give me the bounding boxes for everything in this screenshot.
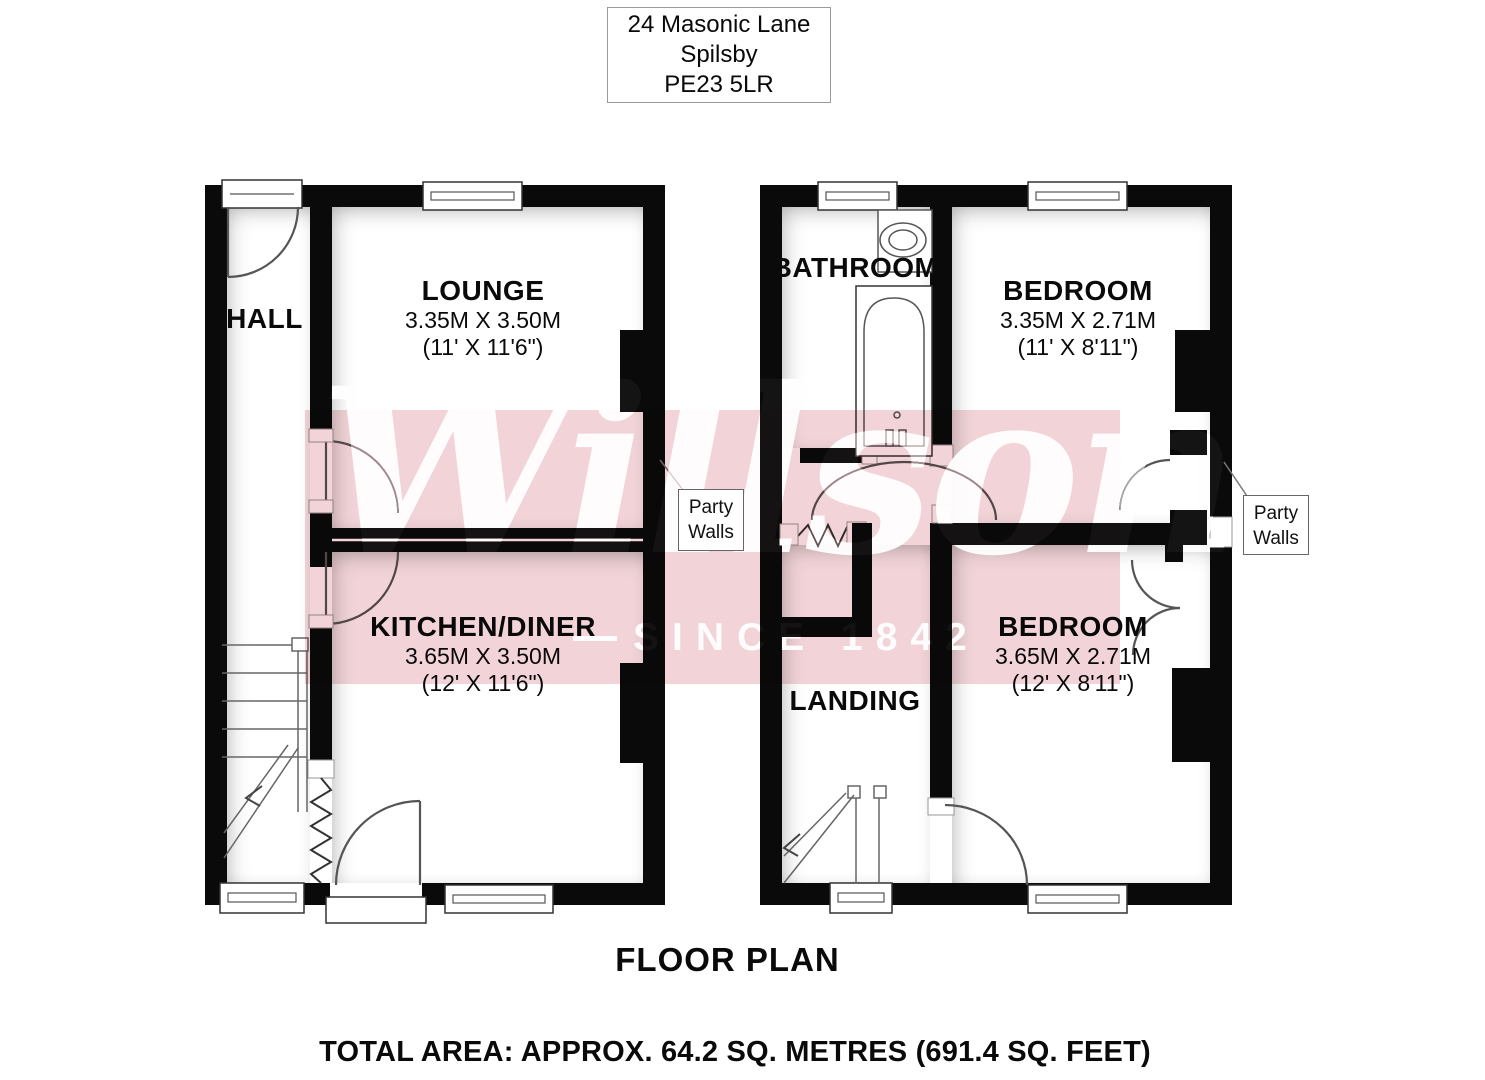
staircase-icon	[784, 786, 886, 883]
room-dimensions-metric: 3.35M X 2.71M	[948, 307, 1208, 334]
window-icon	[445, 885, 553, 913]
party-walls-line1: Party	[689, 497, 733, 518]
window-icon	[1028, 182, 1127, 210]
label-bedroom-1: BEDROOM 3.35M X 2.71M (11' X 8'11")	[948, 274, 1208, 361]
label-bathroom: BATHROOM	[765, 251, 945, 284]
zigzag-opening-icon	[311, 778, 331, 883]
party-walls-callout: Party Walls	[678, 489, 744, 551]
address-line1: 24 Masonic Lane	[608, 10, 830, 40]
party-walls-line1: Party	[1254, 503, 1298, 524]
door-swing-icon	[228, 207, 298, 277]
door-jamb	[928, 798, 954, 815]
party-walls-callout: Party Walls	[1243, 495, 1309, 555]
total-area-text: TOTAL AREA: APPROX. 64.2 SQ. METRES (691…	[0, 1036, 1470, 1069]
room-dimensions-imperial: (11' X 11'6")	[353, 334, 613, 361]
room-dimensions-metric: 3.35M X 3.50M	[353, 307, 613, 334]
room-name: LANDING	[780, 684, 930, 717]
window-icon	[1028, 885, 1127, 913]
door-sill	[326, 897, 426, 923]
address-line3: PE23 5LR	[608, 70, 830, 100]
wall	[1170, 510, 1207, 523]
address-line2: Spilsby	[608, 40, 830, 70]
label-lounge: LOUNGE 3.35M X 3.50M (11' X 11'6")	[353, 274, 613, 361]
wall	[1170, 430, 1207, 455]
window-icon	[830, 883, 892, 913]
room-name: BATHROOM	[765, 251, 945, 284]
window-icon	[423, 182, 522, 210]
wall	[205, 185, 227, 905]
window-icon	[818, 182, 897, 210]
party-walls-line2: Walls	[688, 522, 734, 543]
window-icon	[220, 883, 304, 913]
room-name: LOUNGE	[353, 274, 613, 307]
plan-title: FLOOR PLAN	[0, 941, 1455, 979]
label-landing: LANDING	[780, 684, 930, 717]
wall	[1165, 545, 1183, 562]
room-name: HALL	[212, 302, 317, 335]
room-name: BEDROOM	[948, 274, 1208, 307]
door-swing-icon	[945, 805, 1027, 885]
door-swing-icon	[1120, 460, 1170, 510]
floorplan-page: HALL LOUNGE 3.35M X 3.50M (11' X 11'6") …	[0, 0, 1485, 1080]
room-dimensions-imperial: (11' X 8'11")	[948, 334, 1208, 361]
party-walls-line2: Walls	[1253, 528, 1299, 549]
address-box: 24 Masonic Lane Spilsby PE23 5LR	[607, 7, 831, 103]
staircase-icon	[222, 638, 308, 858]
wall-seam	[1210, 517, 1232, 547]
label-hall: HALL	[212, 302, 317, 335]
door-swing-icon	[336, 801, 420, 885]
chimney-breast	[620, 330, 643, 412]
